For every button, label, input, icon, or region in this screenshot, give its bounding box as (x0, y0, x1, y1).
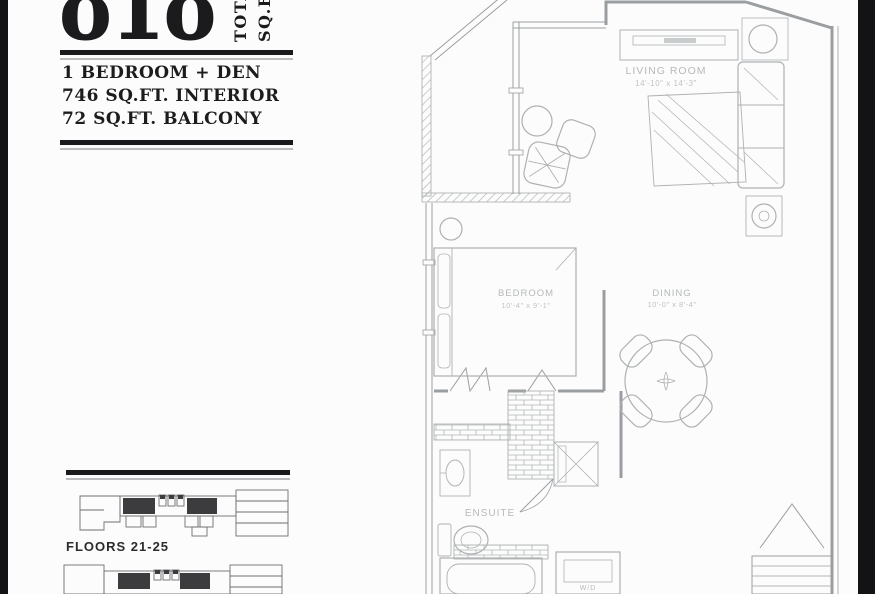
wd-label: W/D (580, 585, 597, 592)
rug (648, 92, 746, 186)
divider-rule-top (60, 50, 293, 60)
floor-plan: LIVING ROOM 14'-10" x 14'-3" BEDROOM 10'… (408, 0, 860, 594)
right-border-band (858, 0, 875, 594)
fact-balcony-sqft: 72 SQ.FT. BALCONY (62, 108, 302, 131)
dining-label: DINING (652, 288, 691, 299)
divider-rule-facts-bottom (60, 140, 293, 150)
armchair-x (522, 140, 572, 190)
room-labels: LIVING ROOM 14'-10" x 14'-3" BEDROOM 10'… (465, 65, 707, 592)
bed (434, 248, 576, 376)
divider-rule-keyplan (66, 470, 290, 480)
hall-closet-door (528, 370, 556, 391)
fact-interior-sqft: 746 SQ.FT. INTERIOR (62, 85, 302, 108)
key-plan-lower-floors (60, 563, 290, 594)
bedroom-label: BEDROOM (498, 288, 554, 299)
fact-bedroom-den: 1 BEDROOM + DEN (62, 62, 302, 85)
bedroom-dims: 10'-4" x 9'-1" (502, 301, 551, 310)
side-table-round (742, 18, 788, 60)
side-table-square (746, 196, 782, 236)
living-room-dims: 14'-10" x 14'-3" (635, 79, 697, 88)
ottoman (554, 117, 598, 161)
balcony (422, 0, 570, 202)
media-console (620, 30, 738, 60)
ensuite-door (520, 479, 553, 512)
total-label-line1: TOTAL (231, 0, 250, 42)
ensuite-label: ENSUITE (465, 508, 515, 519)
key-plan-floors-21-25 (66, 486, 292, 538)
floors-range-label: FLOORS 21-25 (66, 539, 169, 554)
total-label-line2: SQ.FT. (255, 0, 274, 42)
dining-table (616, 331, 716, 431)
entry-closet-doors (760, 504, 824, 548)
living-room-label: LIVING ROOM (625, 65, 706, 77)
unit-walls (422, 0, 838, 594)
ensuite-sink (440, 450, 470, 496)
total-sqft-rotated-label: TOTAL SQ.FT. (230, 0, 285, 50)
armchair-round (522, 106, 552, 136)
bathtub (440, 558, 542, 594)
total-sqft-number: 818 (58, 0, 215, 56)
highlighted-units-lower (118, 570, 210, 589)
washer-dryer-appliance (554, 442, 598, 486)
unit-facts: 1 BEDROOM + DEN 746 SQ.FT. INTERIOR 72 S… (62, 62, 302, 131)
bedroom-stool (440, 218, 462, 240)
entry-closet-shelves (752, 556, 832, 594)
left-border-band (0, 0, 8, 594)
bedroom-closet-bifold-doors (450, 368, 490, 391)
dining-dims: 10'-0" x 8'-4" (648, 300, 697, 309)
highlighted-units (123, 495, 217, 514)
